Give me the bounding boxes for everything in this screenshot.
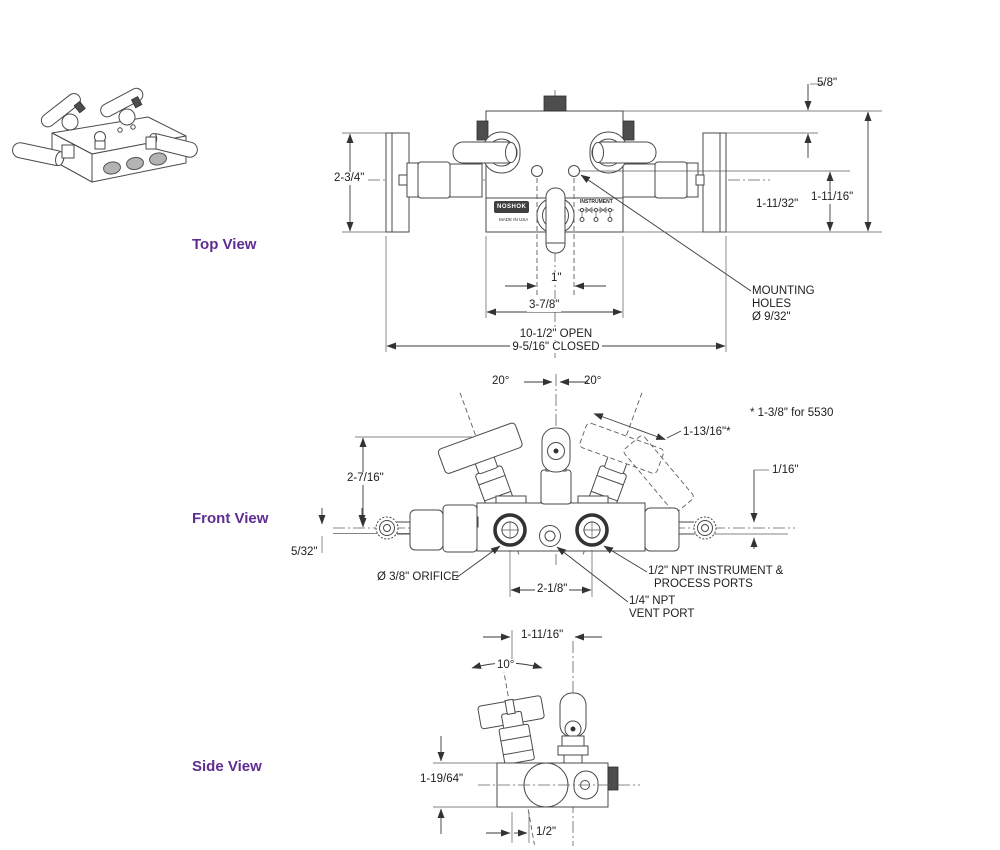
dim-port-spacing: 2-1/8" [535, 583, 569, 596]
dim-axis-offset: 1/2" [536, 826, 556, 839]
isometric-view-thumbnail [11, 86, 199, 182]
orifice-callout: Ø 3/8" ORIFICE [377, 571, 459, 584]
dim-angle-left: 20° [492, 375, 509, 388]
mounting-holes-callout: MOUNTING HOLES Ø 9/32" [752, 285, 815, 324]
dim-edge-offset: 5/8" [817, 77, 837, 90]
dim-overall-width: 10-1/2" OPEN 9-5/16" CLOSED [471, 328, 641, 354]
front-view-label: Front View [192, 510, 268, 527]
dim-valve-spacing: 1-11/16" [519, 629, 565, 642]
vent-callout: 1/4" NPT VENT PORT [629, 595, 694, 621]
note-5530: * 1-3/8" for 5530 [750, 407, 833, 420]
dim-hole-to-front: 1-11/16" [809, 191, 855, 204]
top-view-label: Top View [192, 236, 256, 253]
dim-hole-spacing-small: 1" [549, 272, 563, 285]
dim-handle-height: 2-7/16" [345, 472, 386, 485]
side-view-label: Side View [192, 758, 262, 775]
dim-handle-length: 1-13/16"* [683, 426, 731, 439]
dim-side-angle: 10° [495, 659, 516, 672]
technical-drawing-page: Top View Front View Side View 2-3/4" 5/8… [0, 0, 1000, 850]
dim-body-depth: 2-3/4" [332, 172, 366, 185]
dim-hole-to-edge: 1-11/32" [754, 198, 800, 211]
dim-right-offset: 1/16" [772, 464, 798, 477]
instrument-label: INSTRUMENT [580, 199, 613, 205]
side-view-drawing [433, 630, 640, 850]
origin-label: MADE IN USA [499, 217, 528, 222]
brand-logo: NOSHOK [494, 201, 529, 213]
dim-left-offset: 5/32" [291, 546, 317, 559]
ports-callout: 1/2" NPT INSTRUMENT & PROCESS PORTS [648, 565, 783, 591]
dim-angle-right: 20° [584, 375, 601, 388]
drawing-canvas [0, 0, 1000, 850]
dim-hole-spacing-large: 3-7/8" [527, 299, 561, 312]
dim-body-height: 1-19/64" [418, 773, 465, 786]
